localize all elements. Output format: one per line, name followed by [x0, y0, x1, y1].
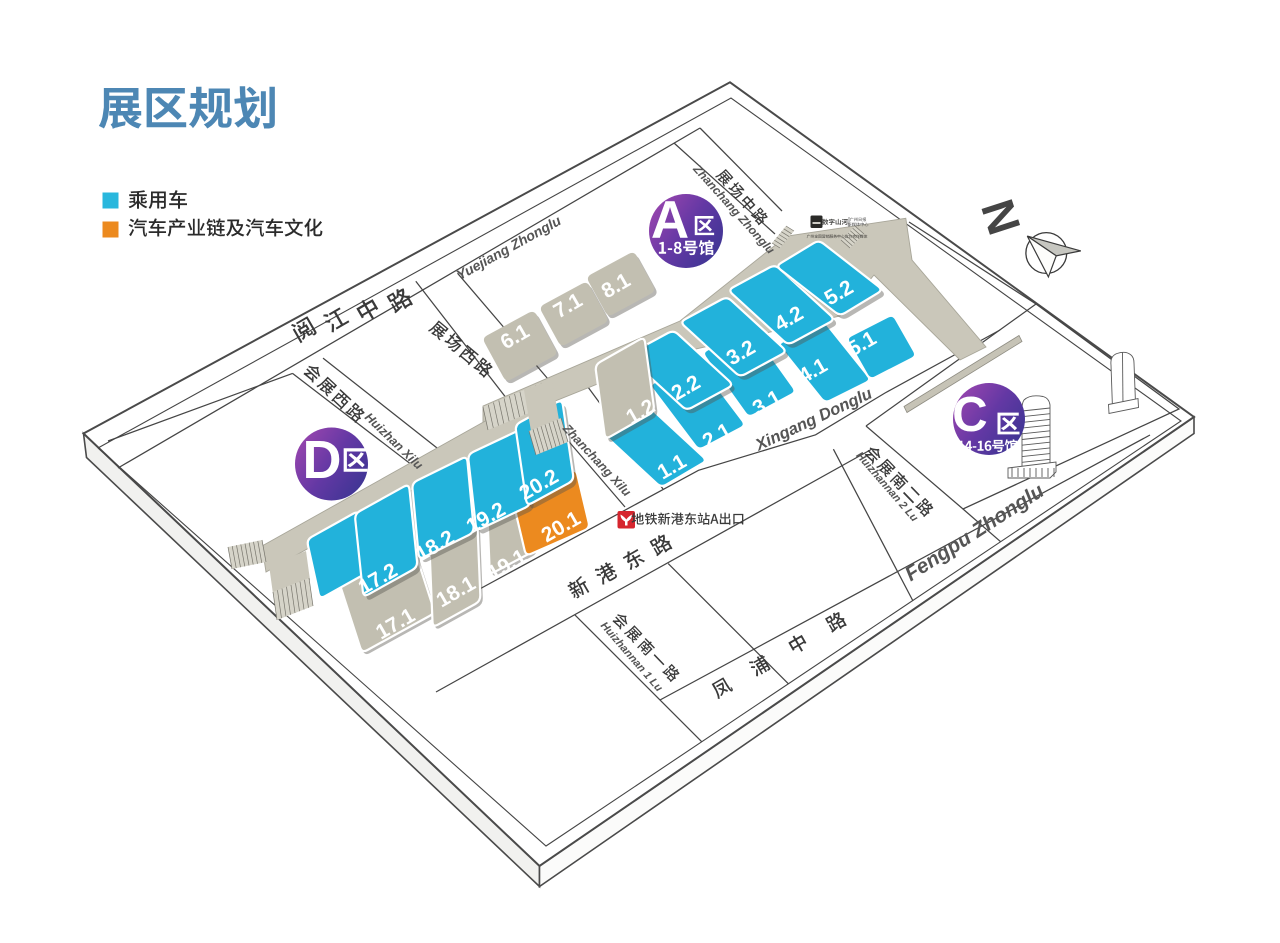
svg-text:D: D: [303, 430, 342, 490]
svg-text:A: A: [651, 191, 689, 250]
svg-text:C: C: [952, 388, 987, 442]
